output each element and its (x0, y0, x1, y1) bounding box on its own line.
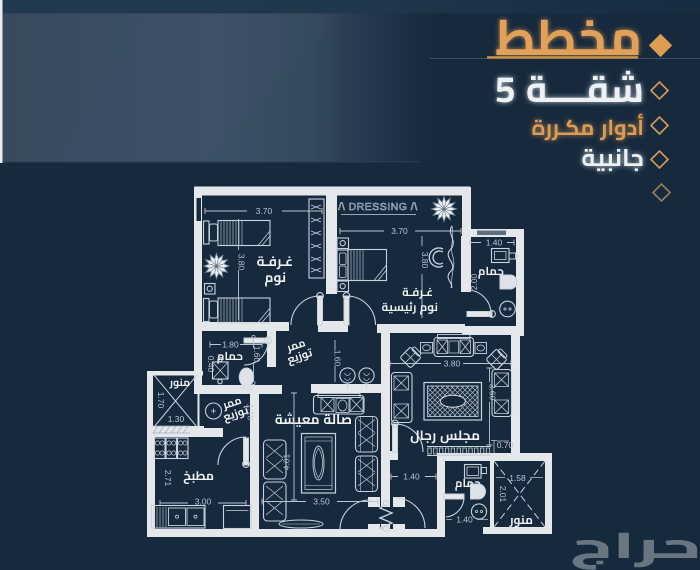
svg-text:1.10: 1.10 (246, 404, 256, 421)
svg-text:3.50: 3.50 (313, 497, 330, 507)
svg-text:1.80: 1.80 (222, 340, 239, 350)
svg-text:0.70: 0.70 (497, 440, 514, 450)
svg-text:1.60: 1.60 (333, 350, 343, 367)
svg-text:2.01: 2.01 (498, 486, 508, 503)
svg-text:3.80: 3.80 (237, 254, 247, 271)
svg-text:3.80: 3.80 (420, 252, 430, 269)
svg-text:1.40: 1.40 (486, 238, 503, 248)
svg-text:4.01: 4.01 (282, 453, 292, 470)
svg-text:1.40: 1.40 (456, 515, 473, 525)
svg-text:1.60: 1.60 (252, 346, 262, 363)
svg-text:1.40: 1.40 (403, 472, 420, 482)
svg-text:3.80: 3.80 (444, 359, 461, 369)
svg-text:2.00: 2.00 (469, 273, 479, 290)
svg-text:1.58: 1.58 (509, 473, 526, 483)
svg-text:3.70: 3.70 (256, 206, 273, 216)
svg-text:/\ DRESSING /\: /\ DRESSING /\ (338, 201, 417, 213)
svg-text:3.60: 3.60 (488, 384, 498, 401)
svg-text:3.70: 3.70 (391, 226, 408, 236)
svg-text:1.30: 1.30 (168, 414, 185, 424)
svg-text:1.70: 1.70 (156, 392, 166, 409)
svg-text:2.71: 2.71 (163, 470, 173, 487)
